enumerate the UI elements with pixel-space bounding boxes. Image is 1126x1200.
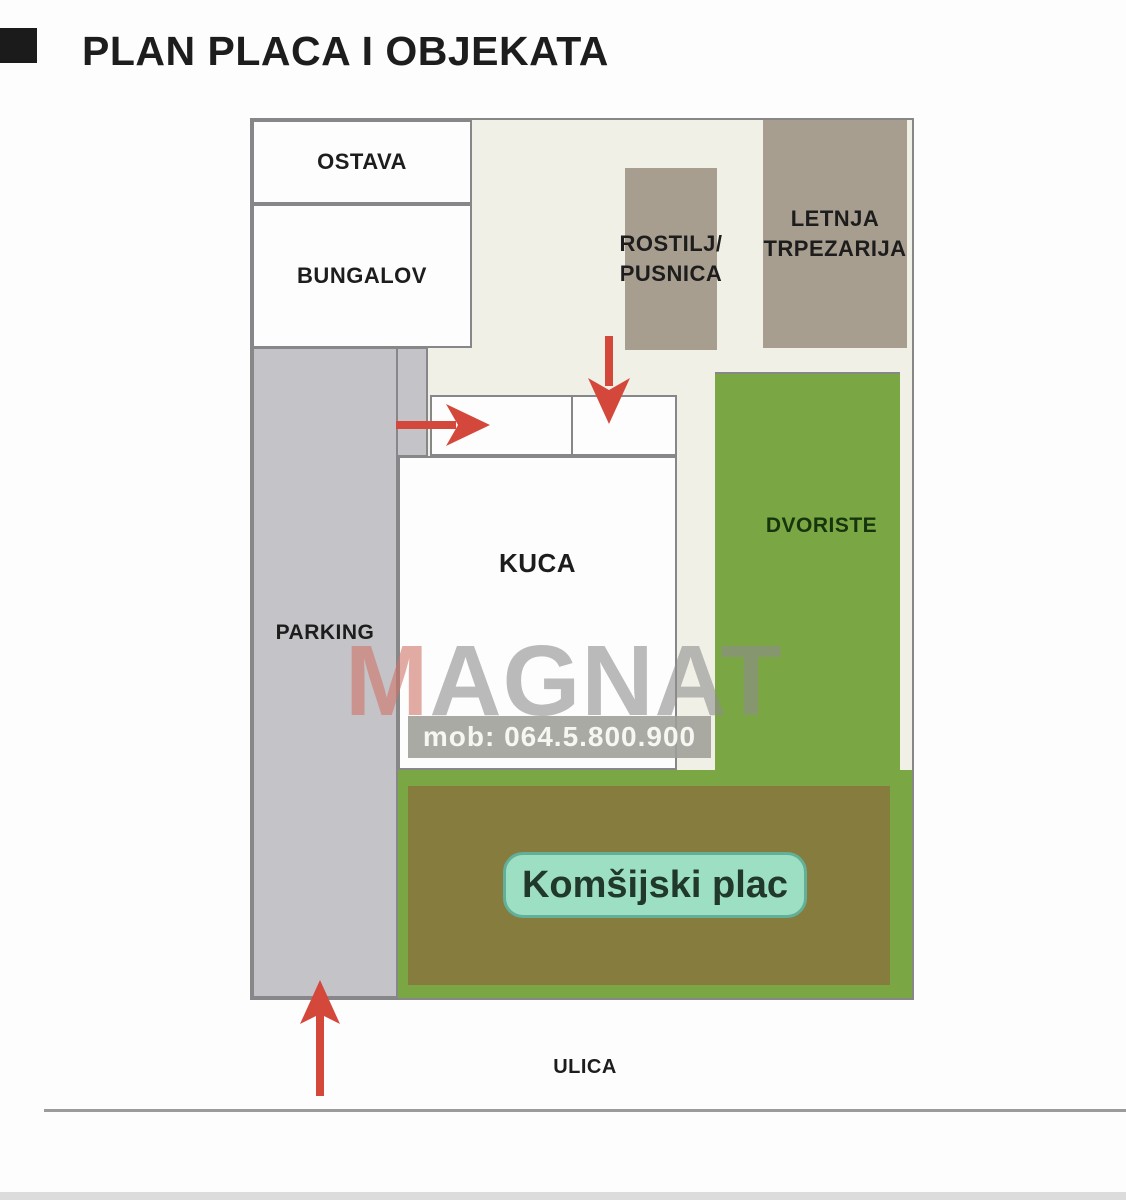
rostilj-pusnica-room: ROSTILJ/ PUSNICA — [625, 168, 717, 350]
corner-artifact-bar — [0, 28, 37, 63]
entrance-arrow-right-icon — [396, 402, 490, 448]
street-entrance-arrow-up-icon — [296, 980, 344, 1096]
rostilj-label-line1: ROSTILJ/ — [620, 229, 723, 259]
street-line — [44, 1109, 1126, 1112]
komsijski-plac-badge: Komšijski plac — [503, 852, 807, 918]
rostilj-label-line2: PUSNICA — [620, 259, 723, 289]
dvoriste-label: DVORISTE — [715, 514, 900, 538]
bungalov-room: BUNGALOV — [252, 204, 472, 348]
street-label: ULICA — [520, 1056, 650, 1079]
komsijski-plac-label: Komšijski plac — [522, 864, 788, 907]
page-title: PLAN PLACA I OBJEKATA — [82, 28, 609, 75]
ostava-label: OSTAVA — [317, 147, 407, 177]
letnja-label-line1: LETNJA — [791, 204, 880, 234]
letnja-label-line2: TRPEZARIJA — [763, 234, 906, 264]
magnat-watermark: MAGNAT — [345, 634, 782, 729]
ostava-room: OSTAVA — [252, 120, 472, 204]
kuca-label: KUCA — [499, 546, 576, 581]
letnja-trpezarija-room: LETNJA TRPEZARIJA — [763, 120, 907, 348]
bottom-edge-strip — [0, 1192, 1126, 1200]
entrance-arrow-down-icon — [586, 336, 632, 424]
bungalov-label: BUNGALOV — [297, 261, 427, 291]
watermark-phone: mob: 064.5.800.900 — [408, 716, 711, 758]
